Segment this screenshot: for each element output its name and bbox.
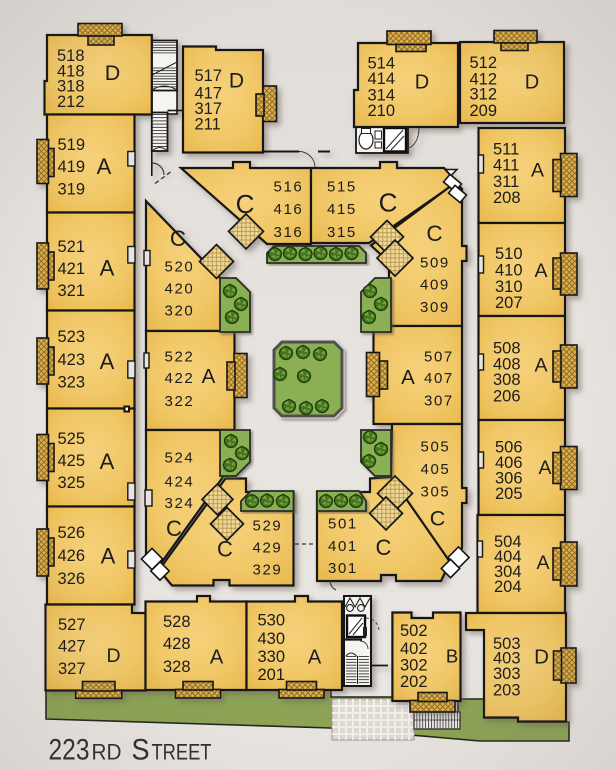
svg-text:501: 501 — [328, 516, 358, 533]
svg-text:423: 423 — [58, 351, 86, 369]
svg-text:507: 507 — [424, 349, 454, 366]
svg-text:430: 430 — [258, 630, 286, 648]
svg-text:324: 324 — [165, 495, 195, 512]
svg-text:415: 415 — [327, 201, 357, 218]
svg-text:519: 519 — [58, 136, 86, 154]
svg-text:421: 421 — [58, 260, 86, 278]
svg-text:A: A — [100, 349, 115, 374]
svg-text:422: 422 — [165, 370, 195, 387]
svg-text:207: 207 — [495, 294, 523, 312]
svg-text:308: 308 — [493, 371, 521, 389]
svg-text:512: 512 — [470, 54, 498, 72]
svg-text:C: C — [376, 535, 392, 560]
svg-text:320: 320 — [165, 303, 195, 320]
svg-text:205: 205 — [495, 485, 523, 503]
svg-text:410: 410 — [495, 262, 523, 280]
svg-text:TREET: TREET — [152, 740, 212, 765]
svg-text:524: 524 — [165, 450, 195, 467]
svg-text:A: A — [534, 355, 547, 377]
svg-text:A: A — [536, 552, 549, 574]
svg-text:525: 525 — [58, 430, 86, 448]
svg-text:C: C — [430, 507, 446, 531]
svg-text:309: 309 — [420, 299, 450, 316]
svg-text:302: 302 — [400, 657, 428, 675]
svg-text:327: 327 — [58, 660, 86, 678]
svg-text:322: 322 — [165, 393, 195, 410]
svg-text:426: 426 — [58, 547, 86, 565]
svg-text:A: A — [308, 647, 322, 669]
svg-text:530: 530 — [258, 612, 286, 630]
svg-text:401: 401 — [328, 538, 358, 555]
svg-text:C: C — [166, 516, 182, 541]
svg-text:407: 407 — [424, 370, 454, 387]
svg-text:510: 510 — [495, 245, 523, 263]
svg-text:203: 203 — [493, 682, 521, 700]
svg-text:502: 502 — [400, 622, 428, 640]
svg-text:D: D — [415, 72, 429, 94]
svg-text:425: 425 — [58, 452, 86, 470]
svg-text:414: 414 — [368, 70, 396, 88]
svg-text:A: A — [101, 544, 116, 569]
svg-text:416: 416 — [274, 201, 304, 218]
svg-text:305: 305 — [421, 484, 451, 501]
svg-text:429: 429 — [253, 539, 283, 556]
svg-text:D: D — [106, 645, 120, 667]
svg-text:223: 223 — [49, 734, 90, 767]
svg-text:505: 505 — [421, 439, 451, 456]
svg-text:D: D — [525, 72, 539, 94]
svg-text:206: 206 — [493, 388, 521, 406]
svg-text:523: 523 — [58, 328, 86, 346]
svg-text:B: B — [446, 646, 458, 667]
svg-text:303: 303 — [493, 665, 521, 683]
svg-text:D: D — [105, 61, 121, 85]
svg-text:319: 319 — [58, 181, 86, 199]
svg-text:527: 527 — [58, 616, 86, 634]
svg-text:315: 315 — [327, 224, 357, 241]
svg-text:A: A — [210, 647, 224, 669]
svg-text:428: 428 — [163, 635, 191, 653]
svg-text:RD: RD — [92, 740, 122, 765]
svg-text:405: 405 — [421, 461, 451, 478]
svg-text:325: 325 — [58, 474, 86, 492]
svg-text:209: 209 — [470, 102, 498, 120]
svg-text:C: C — [170, 226, 186, 251]
svg-text:C: C — [426, 221, 442, 246]
svg-text:A: A — [534, 260, 547, 282]
svg-text:A: A — [97, 154, 112, 179]
svg-text:212: 212 — [57, 93, 85, 111]
svg-text:323: 323 — [58, 374, 86, 392]
svg-text:301: 301 — [328, 560, 358, 577]
svg-text:C: C — [379, 188, 398, 218]
svg-text:411: 411 — [493, 157, 519, 175]
svg-text:522: 522 — [165, 349, 195, 366]
svg-text:S: S — [132, 734, 150, 767]
svg-text:528: 528 — [163, 613, 191, 631]
svg-text:A: A — [538, 457, 551, 479]
svg-text:515: 515 — [327, 179, 357, 196]
svg-text:509: 509 — [420, 255, 450, 272]
svg-text:521: 521 — [58, 238, 86, 256]
svg-text:316: 316 — [274, 224, 304, 241]
svg-text:307: 307 — [424, 393, 454, 410]
svg-text:A: A — [531, 160, 544, 182]
svg-text:424: 424 — [165, 474, 195, 491]
svg-text:D: D — [534, 646, 549, 669]
svg-text:A: A — [202, 365, 216, 388]
svg-text:326: 326 — [58, 570, 86, 588]
svg-text:427: 427 — [58, 638, 86, 656]
svg-text:517: 517 — [195, 67, 223, 85]
svg-text:202: 202 — [400, 673, 428, 691]
svg-text:328: 328 — [163, 658, 191, 676]
svg-text:208: 208 — [493, 189, 521, 207]
svg-text:520: 520 — [165, 259, 195, 276]
svg-text:330: 330 — [258, 648, 286, 666]
svg-text:A: A — [100, 449, 115, 474]
svg-text:A: A — [401, 366, 415, 389]
svg-text:201: 201 — [258, 666, 286, 684]
svg-text:420: 420 — [165, 281, 195, 298]
svg-text:516: 516 — [274, 179, 304, 196]
svg-text:C: C — [217, 537, 233, 562]
svg-text:419: 419 — [58, 158, 86, 176]
svg-text:526: 526 — [58, 524, 86, 542]
svg-text:204: 204 — [494, 578, 522, 596]
svg-text:402: 402 — [400, 640, 428, 658]
svg-text:210: 210 — [368, 102, 396, 120]
svg-text:211: 211 — [195, 116, 221, 134]
svg-text:409: 409 — [420, 277, 450, 294]
svg-text:321: 321 — [58, 282, 86, 300]
svg-text:D: D — [229, 70, 244, 93]
svg-text:329: 329 — [253, 562, 283, 579]
svg-text:529: 529 — [253, 518, 283, 535]
svg-text:A: A — [100, 256, 115, 281]
